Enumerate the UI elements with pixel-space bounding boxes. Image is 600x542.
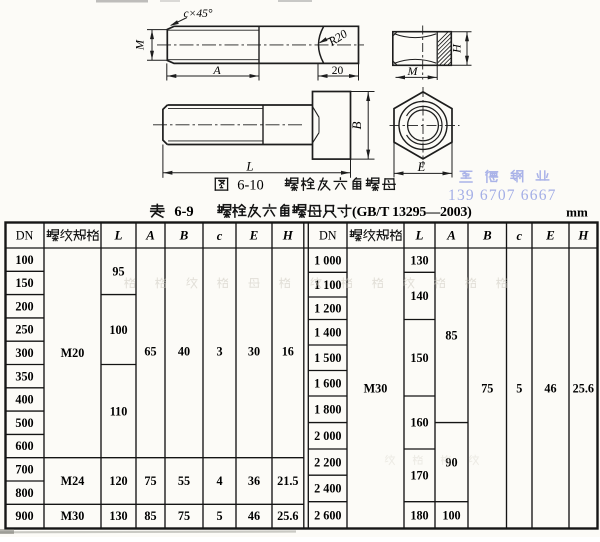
svg-text:M24: M24 — [61, 474, 85, 488]
svg-text:95: 95 — [112, 265, 124, 279]
svg-text:16: 16 — [282, 345, 294, 359]
svg-text:c: c — [217, 229, 223, 243]
svg-text:130: 130 — [410, 253, 428, 267]
svg-text:L: L — [415, 228, 424, 243]
svg-text:400: 400 — [15, 393, 33, 407]
svg-text:c: c — [517, 229, 523, 243]
svg-text:6-10: 6-10 — [237, 177, 264, 193]
svg-text:25.6: 25.6 — [277, 509, 298, 523]
svg-text:1 800: 1 800 — [314, 403, 341, 417]
svg-text:250: 250 — [15, 323, 33, 337]
svg-text:150: 150 — [15, 276, 33, 290]
svg-text:65: 65 — [144, 345, 156, 359]
svg-text:21.5: 21.5 — [277, 474, 298, 488]
svg-text:5: 5 — [516, 382, 522, 396]
svg-text:1 200: 1 200 — [314, 302, 341, 316]
svg-text:5: 5 — [216, 509, 222, 523]
svg-text:2 400: 2 400 — [314, 482, 341, 496]
svg-text:M30: M30 — [61, 509, 85, 523]
svg-text:1 000: 1 000 — [314, 253, 341, 267]
svg-text:1 400: 1 400 — [314, 326, 341, 340]
svg-text:4: 4 — [216, 474, 222, 488]
svg-text:20: 20 — [332, 65, 344, 77]
svg-text:500: 500 — [15, 416, 33, 430]
svg-text:B: B — [179, 228, 189, 243]
svg-text:1 600: 1 600 — [314, 377, 341, 391]
svg-text:180: 180 — [410, 508, 428, 522]
svg-text:36: 36 — [248, 474, 260, 488]
svg-text:H: H — [282, 228, 294, 243]
svg-text:85: 85 — [144, 509, 156, 523]
svg-text:200: 200 — [15, 299, 33, 313]
svg-text:130: 130 — [109, 509, 127, 523]
svg-text:M: M — [407, 64, 419, 78]
svg-text:2 000: 2 000 — [314, 429, 341, 443]
svg-text:75: 75 — [481, 382, 493, 396]
svg-text:350: 350 — [15, 369, 33, 383]
svg-text:800: 800 — [15, 486, 33, 500]
svg-text:139 6707 6667: 139 6707 6667 — [448, 187, 557, 204]
svg-text:M30: M30 — [364, 382, 388, 396]
svg-text:M20: M20 — [61, 346, 85, 360]
svg-text:150: 150 — [410, 351, 428, 365]
svg-text:40: 40 — [178, 345, 190, 359]
svg-text:L: L — [245, 158, 253, 173]
svg-text:L: L — [114, 228, 123, 243]
svg-text:mm: mm — [566, 205, 588, 220]
svg-text:55: 55 — [178, 474, 190, 488]
svg-text:6-9: 6-9 — [174, 204, 193, 220]
svg-text:A: A — [212, 63, 221, 77]
svg-text:2 200: 2 200 — [314, 455, 341, 469]
svg-text:46: 46 — [544, 382, 556, 396]
svg-text:100: 100 — [109, 323, 127, 337]
svg-text:140: 140 — [410, 289, 428, 303]
svg-text:DN: DN — [319, 228, 337, 242]
svg-text:46: 46 — [248, 509, 260, 523]
svg-text:900: 900 — [15, 509, 33, 523]
svg-text:B: B — [482, 228, 492, 243]
svg-text:3: 3 — [216, 345, 222, 359]
svg-text:100: 100 — [442, 508, 460, 522]
svg-text:DN: DN — [16, 228, 34, 242]
svg-text:A: A — [446, 228, 456, 243]
svg-text:E: E — [545, 228, 555, 243]
svg-text:A: A — [145, 228, 155, 243]
svg-text:120: 120 — [109, 474, 127, 488]
svg-text:75: 75 — [178, 509, 190, 523]
svg-text:M: M — [133, 39, 147, 51]
svg-text:(GB/T 13295—2003): (GB/T 13295—2003) — [352, 205, 472, 220]
svg-text:85: 85 — [445, 329, 457, 343]
svg-text:170: 170 — [410, 469, 428, 483]
svg-text:110: 110 — [110, 404, 128, 418]
svg-text:100: 100 — [15, 253, 33, 267]
svg-text:300: 300 — [15, 346, 33, 360]
svg-text:160: 160 — [410, 416, 428, 430]
svg-text:c×45°: c×45° — [184, 8, 213, 20]
svg-text:H: H — [450, 43, 464, 54]
svg-text:E: E — [417, 160, 426, 174]
svg-text:B: B — [349, 121, 364, 129]
svg-text:25.6: 25.6 — [573, 382, 594, 396]
svg-text:30: 30 — [248, 345, 260, 359]
svg-text:2 600: 2 600 — [314, 508, 341, 522]
svg-text:75: 75 — [144, 474, 156, 488]
svg-text:600: 600 — [15, 439, 33, 453]
svg-text:E: E — [249, 228, 259, 243]
svg-text:H: H — [577, 228, 589, 243]
svg-text:700: 700 — [15, 463, 33, 477]
svg-text:1 500: 1 500 — [314, 351, 341, 365]
